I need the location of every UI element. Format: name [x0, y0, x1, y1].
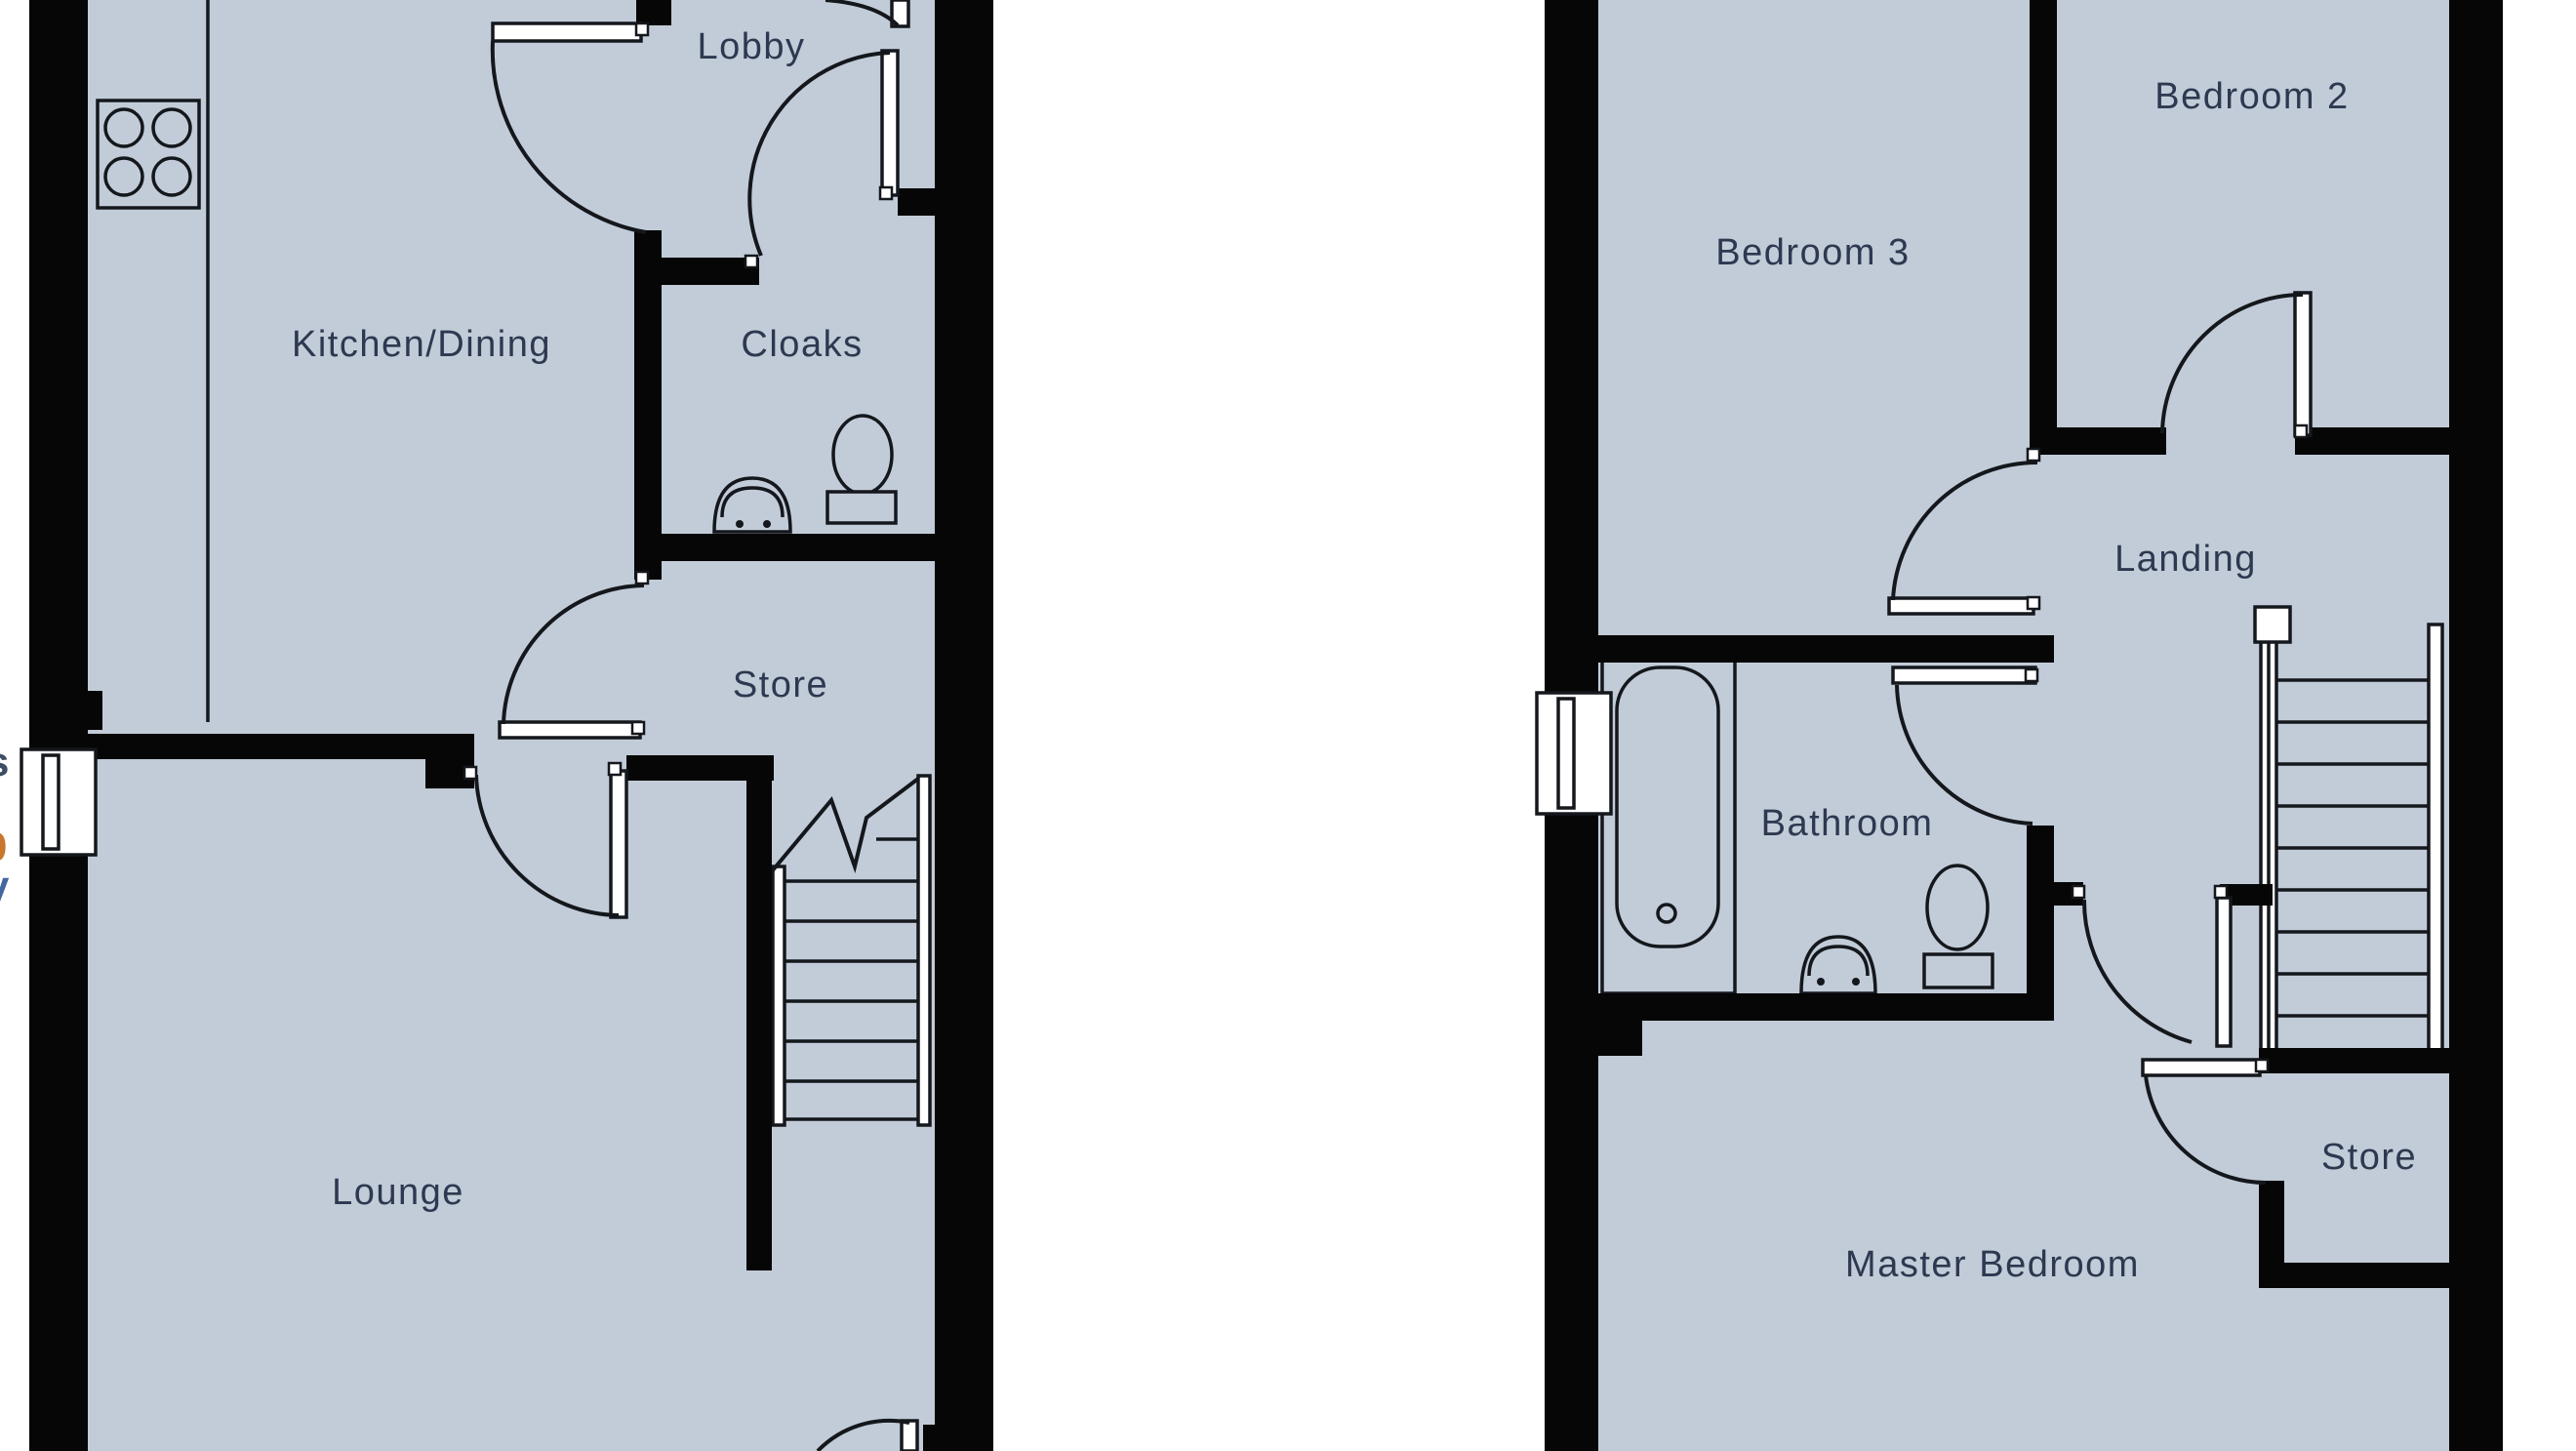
cutoff-text-fragment: s — [0, 739, 9, 785]
floor-plan-figure: Lobby Kitchen/Dining Cloaks Store Lounge — [0, 0, 2576, 1451]
toilet-icon — [1924, 866, 1992, 987]
ground-floor-plan: Lobby Kitchen/Dining Cloaks Store Lounge — [21, 0, 993, 1451]
cutoff-text-fragment: y — [0, 863, 10, 908]
room-label-store-ground: Store — [733, 665, 828, 705]
window-icon — [21, 749, 96, 855]
room-label-bedroom3: Bedroom 3 — [1715, 232, 1910, 273]
room-label-landing: Landing — [2114, 539, 2257, 580]
room-label-lobby: Lobby — [697, 26, 805, 67]
room-label-bedroom2: Bedroom 2 — [2154, 76, 2349, 117]
room-label-kitchen-dining: Kitchen/Dining — [292, 324, 551, 365]
left-edge-cutoff-text: s , 0 y — [0, 739, 10, 908]
stair-newel-post — [2255, 607, 2290, 642]
room-label-store-first: Store — [2321, 1137, 2417, 1178]
hob-icon — [98, 101, 199, 208]
room-label-bathroom: Bathroom — [1761, 803, 1934, 844]
window-icon — [1537, 693, 1611, 814]
toilet-icon — [827, 416, 896, 523]
room-label-cloaks: Cloaks — [741, 324, 863, 365]
room-label-lounge: Lounge — [332, 1172, 464, 1213]
first-floor-plan: Bedroom 3 Bedroom 2 Landing Bathroom Sto… — [1537, 0, 2503, 1451]
room-label-master-bedroom: Master Bedroom — [1845, 1244, 2140, 1285]
floor-plan-canvas: Lobby Kitchen/Dining Cloaks Store Lounge — [0, 0, 2576, 1451]
